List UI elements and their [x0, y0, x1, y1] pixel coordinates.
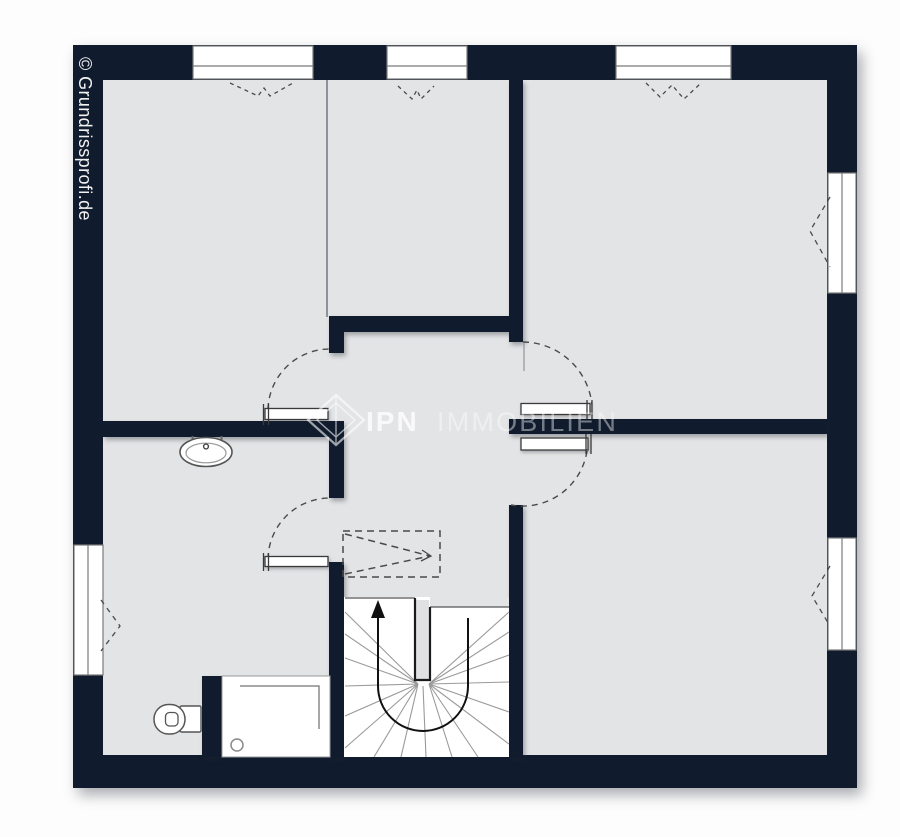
toilet-bowl-inner — [166, 713, 179, 727]
window-top-left — [193, 46, 313, 79]
floor-plan-canvas: © Grundrissprofi.de IPN IMMOBILIEN — [0, 0, 900, 837]
brand-watermark-secondary: IMMOBILIEN — [437, 407, 618, 437]
wall-hall-east-upper — [509, 80, 523, 342]
wall-top-middle-south — [329, 316, 523, 332]
shower — [222, 676, 330, 757]
wall-bathroom-east — [329, 562, 344, 758]
wall-shower-partition — [202, 676, 222, 757]
winder-staircase — [344, 597, 509, 757]
window-left-lower — [74, 545, 103, 675]
wall-hall-west-stub — [329, 316, 344, 353]
copyright-watermark: © Grundrissprofi.de — [75, 57, 95, 221]
wall-stair-east — [509, 505, 523, 758]
toilet — [154, 705, 201, 735]
brand-watermark-primary: IPN — [366, 406, 419, 437]
washbasin-faucet-icon — [204, 444, 209, 449]
window-top-middle — [387, 46, 467, 79]
window-top-right — [616, 46, 731, 79]
stair-right-offset — [430, 597, 509, 607]
outer-wall-right — [827, 45, 857, 788]
window-right-upper — [828, 173, 856, 293]
floor-plan-drawing: © Grundrissprofi.de IPN IMMOBILIEN — [0, 0, 900, 837]
shower-drain-icon — [231, 739, 243, 751]
window-right-lower — [828, 538, 856, 650]
outer-wall-bottom — [73, 755, 857, 788]
washbasin-outer — [180, 438, 232, 467]
door-leaf — [521, 438, 588, 450]
stair-divider-gap — [416, 600, 429, 679]
door-leaf — [265, 557, 328, 567]
wall-room-top-left-south — [103, 421, 344, 437]
